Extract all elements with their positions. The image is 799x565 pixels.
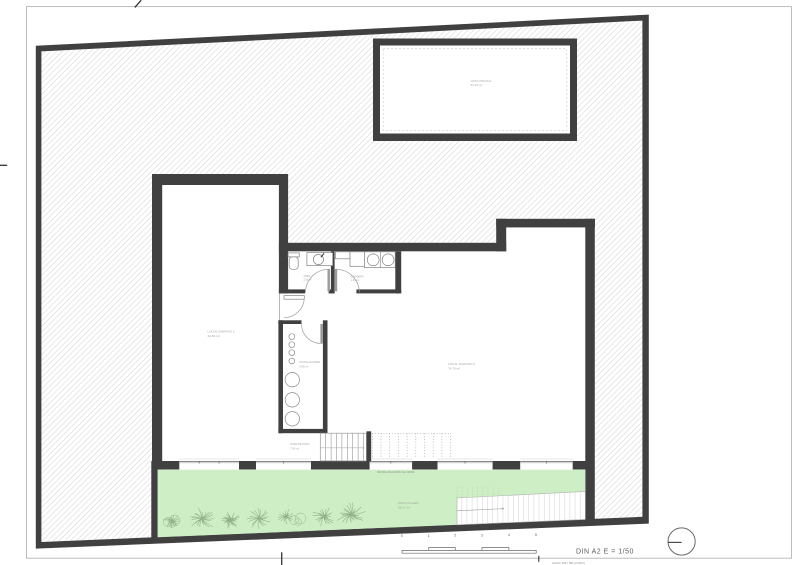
svg-text:4: 4	[508, 533, 510, 537]
svg-text:23.16 m²: 23.16 m²	[471, 83, 483, 87]
svg-text:5: 5	[535, 533, 537, 537]
svg-text:3: 3	[481, 533, 483, 537]
svg-text:7.04 m²: 7.04 m²	[290, 447, 299, 451]
svg-text:1: 1	[428, 534, 430, 538]
svg-text:44.80 m²: 44.80 m²	[208, 334, 220, 338]
svg-text:2.61 m²: 2.61 m²	[351, 279, 359, 282]
svg-text:LOCAL DIAFANO 1: LOCAL DIAFANO 1	[208, 329, 235, 333]
svg-text:0: 0	[401, 534, 403, 538]
svg-text:INSTALACIONES: INSTALACIONES	[300, 360, 321, 364]
svg-text:6.08 m²: 6.08 m²	[300, 364, 309, 368]
svg-text:DIN A2 E = 1/50: DIN A2 E = 1/50	[576, 549, 634, 556]
svg-text:2: 2	[454, 534, 456, 538]
svg-text:Av/A3= 420 / 594 (0.25m²): Av/A3= 420 / 594 (0.25m²)	[552, 561, 585, 565]
svg-text:29.17 m²: 29.17 m²	[398, 505, 410, 509]
svg-text:VENTANA BAJA MURO DE JARDIN: VENTANA BAJA MURO DE JARDIN	[377, 471, 415, 474]
svg-text:74.75 m²: 74.75 m²	[448, 367, 460, 371]
svg-text:LOCAL DIAFANO 2: LOCAL DIAFANO 2	[448, 362, 475, 366]
svg-text:ZONA DE PASO: ZONA DE PASO	[290, 442, 309, 446]
svg-text:2.50 m²: 2.50 m²	[304, 279, 312, 282]
svg-text:PATIO INGLES: PATIO INGLES	[398, 501, 418, 505]
